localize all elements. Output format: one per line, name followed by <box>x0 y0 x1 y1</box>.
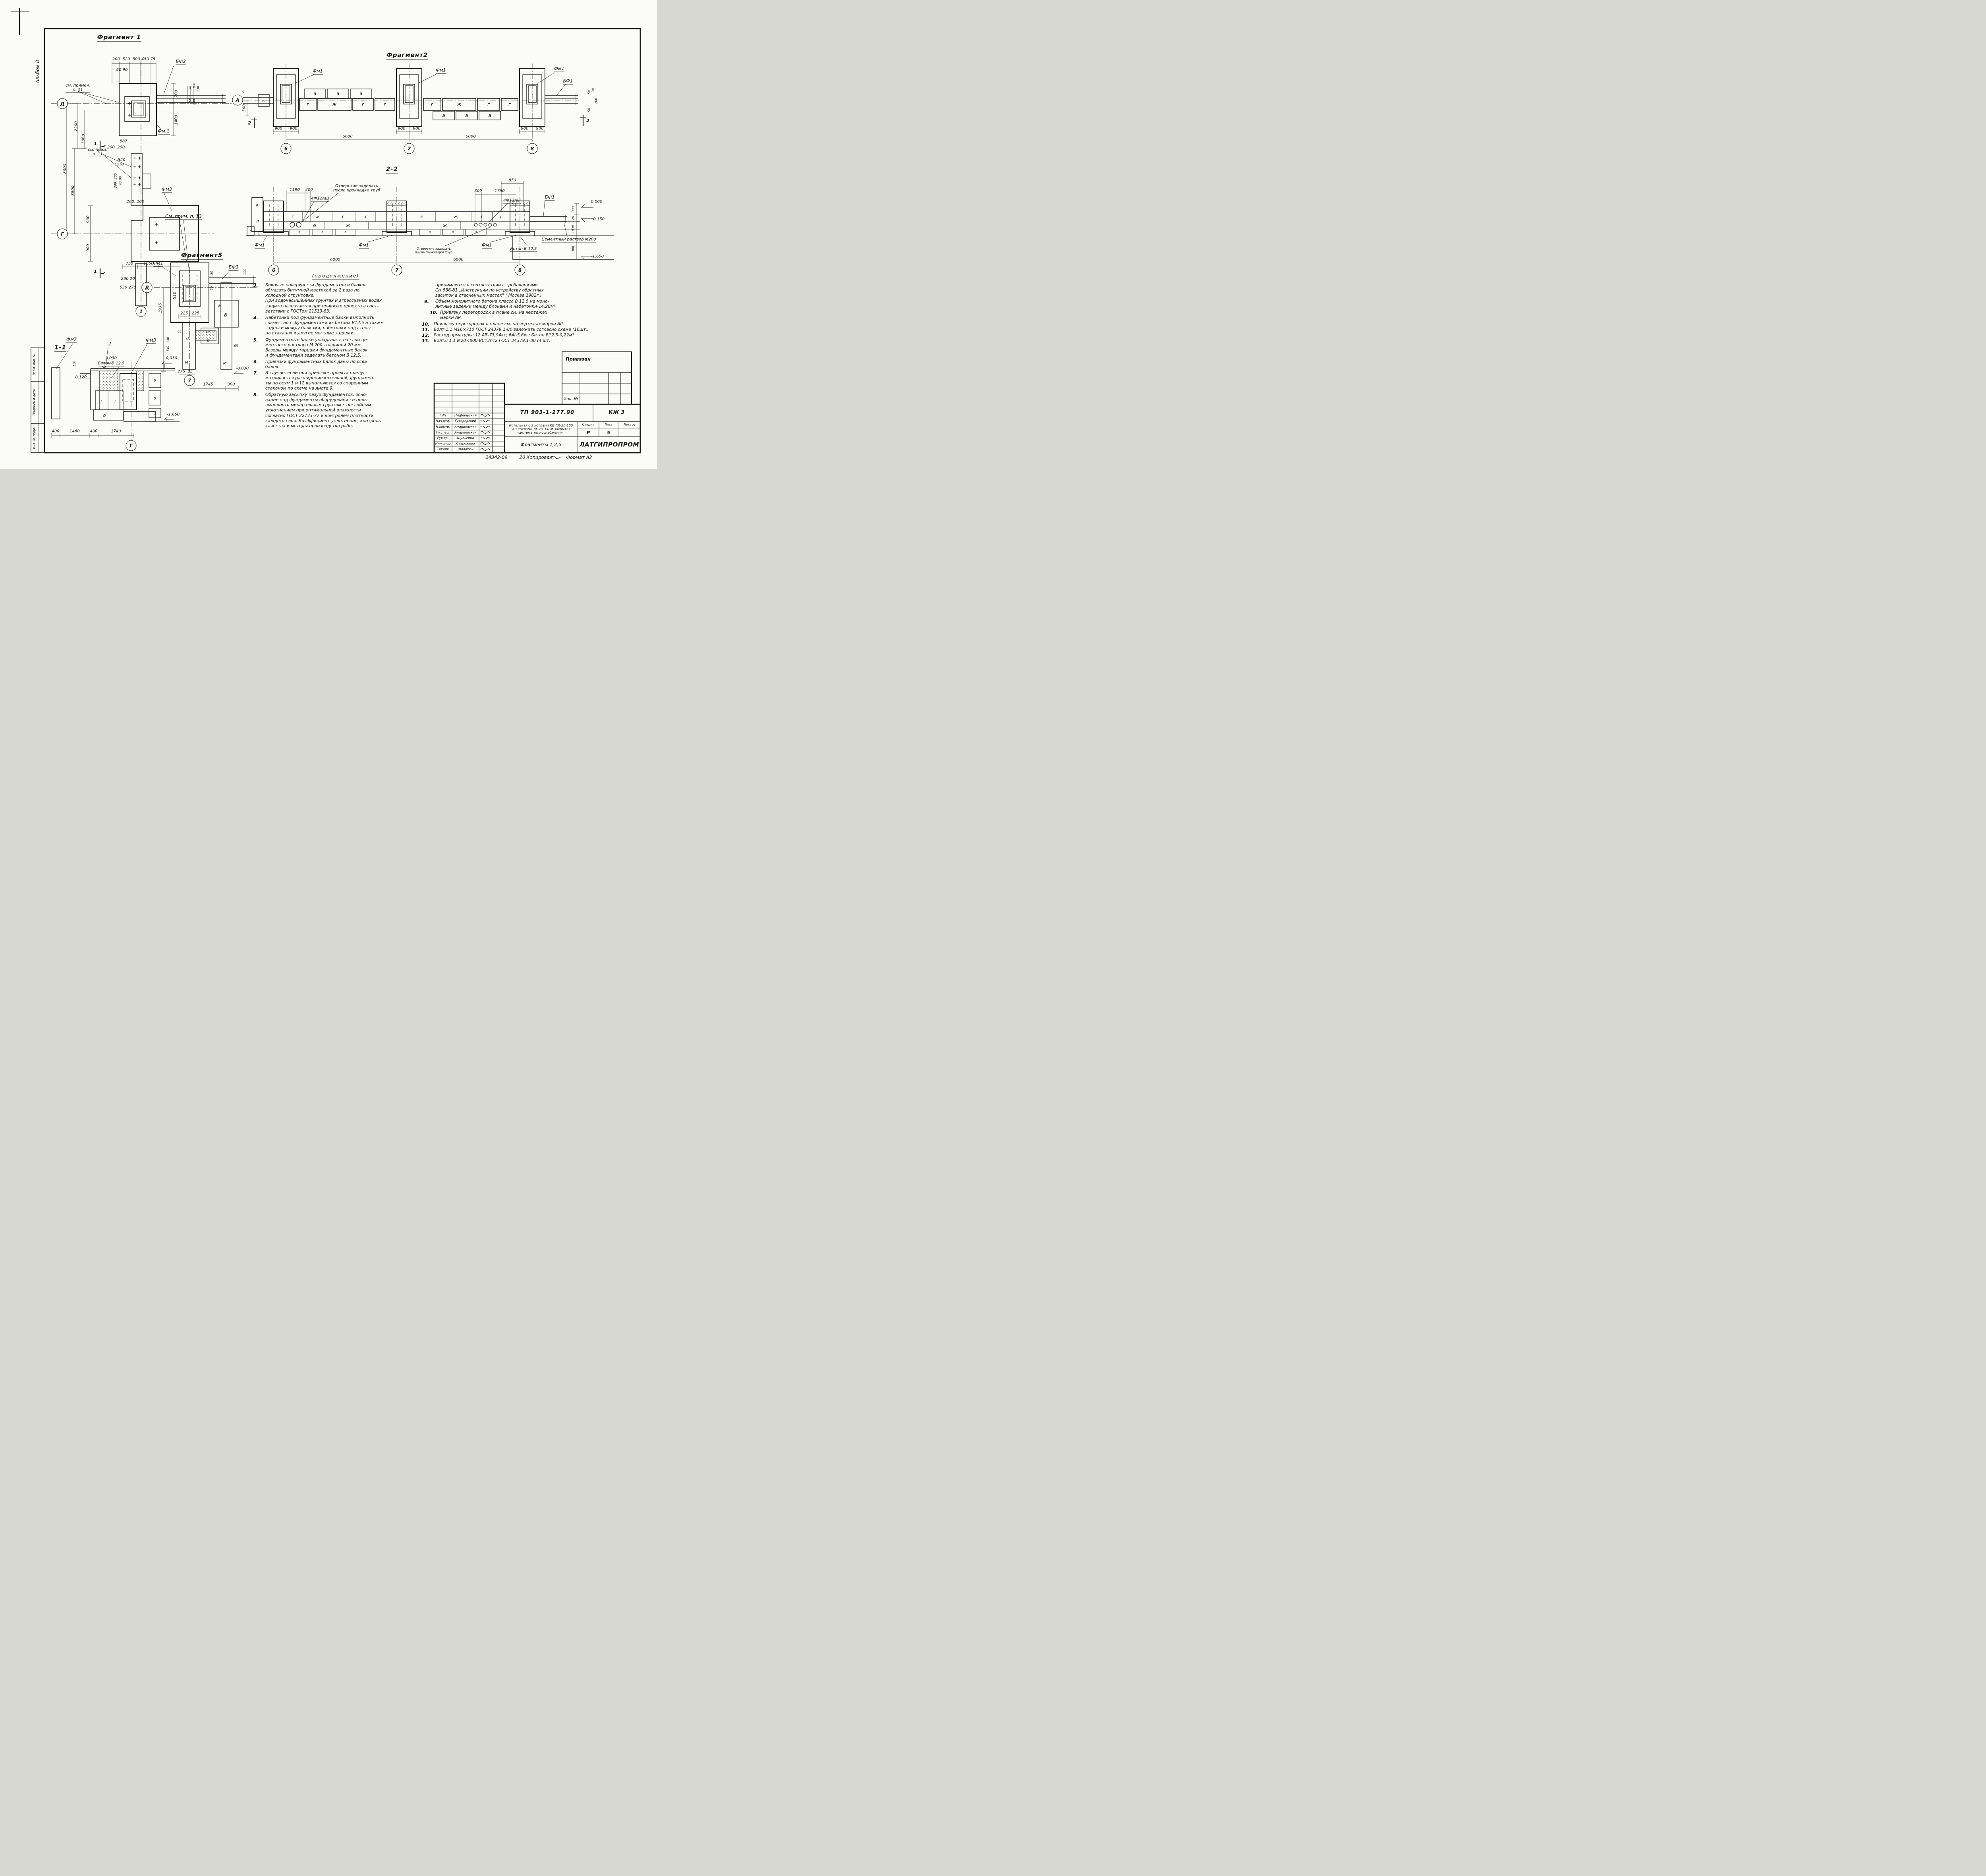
sec22-level-zero: 0.000 <box>591 199 603 204</box>
tb-code: КЖ 3 <box>609 410 624 416</box>
frag5-blk-a2: а <box>218 303 220 309</box>
frag2-block-a5: а <box>465 113 468 118</box>
sec22-blk-g1: г <box>292 214 294 220</box>
frag1-dim-587: 587 <box>120 139 127 143</box>
tb-name-2: Гутерерский <box>455 420 476 423</box>
frag1-dim-200200a: 200 200 <box>107 145 125 149</box>
notes-heading: (продолжение) <box>312 274 359 280</box>
sec22-bars2-label: 4Ф12АIII <box>503 198 520 203</box>
note7-text: В случае, если при привязке проекта пред… <box>265 371 424 392</box>
sec22-blk-g5: г <box>500 214 502 220</box>
frag5-dim-510: 510 <box>172 291 177 299</box>
sec11-blk-a2: а <box>153 411 156 416</box>
frag1-dim-50a: 50 <box>189 86 193 90</box>
note8-text: Обратную засыпку пазух фундаментов, осно… <box>265 392 424 429</box>
sec22-axis-6: 6 <box>269 265 279 276</box>
frag5-blk-v2: в <box>207 338 210 344</box>
sec11-beton-label: Бетон В 12,5 <box>98 361 125 366</box>
frag5-blk-m1: м <box>185 360 189 365</box>
frag1-dim-28020: 280 20 <box>121 276 135 281</box>
margin-stamp-vzam: Взам. инв. № <box>33 354 37 375</box>
sec11-dim-400a: 400 <box>52 429 59 433</box>
frag1-dim-100b: 100 <box>193 99 197 105</box>
sec22-blk-zh2: ж <box>346 223 350 228</box>
frag1-dim-2200: 2200 <box>74 121 78 131</box>
tb-sheet-header: Лист <box>605 423 612 427</box>
sec22-chain-20: 20 <box>572 216 576 220</box>
sec11-fm7-label: Фм7 <box>66 337 77 343</box>
frag5-dim-140a: 140 <box>167 337 170 343</box>
sec22-blk-zh1: ж <box>316 214 320 220</box>
frag2-dim-5: 5 <box>242 91 244 95</box>
frag1-dim-900a: 900 <box>86 215 90 223</box>
sec22-dim-850: 850 <box>508 178 516 182</box>
tb-name-7: Шолотюк <box>458 448 473 452</box>
sec11-dim-1460: 1460 <box>70 429 79 433</box>
sec11-blk-g2: г <box>114 399 117 404</box>
note8-num: 8. <box>253 392 258 398</box>
frag2-dim-30: 30 <box>592 88 595 92</box>
frag2-dim-50b: 50 <box>588 108 591 112</box>
frag1-dim-700: 700 <box>174 90 178 97</box>
sec11-blk-a1: а <box>103 413 106 418</box>
note4-text: Набетонки под фундаментные балки выполни… <box>265 315 424 336</box>
frag1-dim-750: 750 <box>126 261 133 266</box>
sec22-cement-label: Цементный раствор М200 <box>541 237 596 242</box>
frag1-fm3-label: Фм3 <box>162 187 172 193</box>
sec22-level-m165: -1,650 <box>591 254 604 259</box>
frag1-dim-100a: 100 <box>193 83 197 89</box>
note5-num: 5. <box>253 338 258 343</box>
frag5-prim13-label: См. прим. п. 13 <box>165 214 202 220</box>
note6-text: Привязки фундаментных балок даны по осям… <box>265 359 424 370</box>
frag1-strip-dim-200b: 200 <box>114 182 118 188</box>
frag2-block-zh2: ж <box>457 102 461 107</box>
note10-num: 10. <box>422 322 430 327</box>
drawing-sheet: Альбом 8 Взам. инв. № Подпись и дата Инв… <box>0 0 657 469</box>
sec22-fm1-label-3: Фм1 <box>482 243 492 249</box>
tb-name-1: Нидбальский <box>454 414 477 418</box>
sec22-chain-1030: 1030 <box>572 225 576 233</box>
tb-stage-value: Р <box>587 430 590 436</box>
axis-bubble-g: Г <box>57 229 68 239</box>
frag5-blk-b: б <box>224 313 227 318</box>
sec11-dim-1740: 1740 <box>111 429 121 433</box>
sec22-blk-a2: а <box>322 231 324 234</box>
frag5-level-m003: -0,030 <box>236 366 249 371</box>
frag2-block-a3: а <box>359 91 362 97</box>
frag2-block-g4: г <box>431 102 433 107</box>
frag2-block-a2: а <box>336 91 339 97</box>
sec11-dim-400b: 400 <box>90 429 97 433</box>
axis-bubble-8: 8 <box>527 143 538 154</box>
sec22-dim-1190: 1190 <box>290 187 299 192</box>
sec22-hole-note-2: Отверстие заделать после прокладки труб <box>415 247 453 255</box>
note9-text: Объем монолитного бетона класса В 12,5 н… <box>435 299 618 309</box>
tb-role-4: Гл.спец. <box>436 431 450 435</box>
sec22-bf1-label: БФ1 <box>545 195 554 201</box>
frag1-note11b: см. прим. п. 11 <box>88 148 108 157</box>
margin-stamp-podpis: Подпись и дата <box>33 389 37 415</box>
frag5-dim-140b: 140 <box>167 345 170 351</box>
sec22-chain-300a: 300 <box>572 206 576 212</box>
note10a-num: 10. <box>430 310 438 315</box>
tb-name-6: Старожева <box>456 442 475 446</box>
sec22-blk-a1: а <box>299 231 301 234</box>
frag1-dim-3800: 3800 <box>71 185 75 195</box>
frag1-dim-9090a: 90 90 <box>116 68 128 72</box>
sec22-dim-1750: 1750 <box>495 189 504 193</box>
frag5-dim-65b: 65 <box>234 345 238 348</box>
axis-bubble-6: 6 <box>281 143 292 154</box>
sec11-blk-v1: в <box>154 378 156 383</box>
frag5-dim-200: 200 <box>244 268 247 274</box>
sec22-fm1-label-1: Фм1 <box>255 243 265 249</box>
tb-stage-header: Стадия <box>582 423 595 427</box>
frag1-bf2-label: БФ2 <box>176 59 185 65</box>
sec22-dim-6000-1: 6000 <box>330 257 340 262</box>
sec22-bars1-label: 4Ф12АШ <box>311 196 329 201</box>
tb-role-6: Инженер <box>435 442 451 446</box>
frag1-fm1-label: Фм 1 <box>158 129 170 135</box>
frag2-block-k: к <box>263 98 265 104</box>
frag5-dim-50b: 50 <box>211 286 214 290</box>
sec11-blk-v2: в <box>154 396 156 401</box>
frag2-dim-6000-2: 6000 <box>466 134 475 139</box>
note7-num: 7. <box>253 371 258 376</box>
frag1-strip-dim-200a: 200 <box>114 173 118 179</box>
frag2-block-g5: г <box>487 102 490 107</box>
note8-continuation: принимаются в соответствии с требованиям… <box>435 283 618 298</box>
tb-doc-number: ТП 903-1-277.90 <box>520 410 574 416</box>
note13-num: 13. <box>422 338 430 344</box>
sec11-level-m012: -0,120 <box>74 375 87 379</box>
sec22-blk-e2: е <box>420 214 423 220</box>
sec22-dim-300a: 300 <box>305 187 313 192</box>
frag2-fm1-label-1: Фм1 <box>313 69 323 75</box>
sec22-axis-8: 8 <box>515 265 525 276</box>
frag2-block-zh1: ж <box>332 102 336 107</box>
frag1-dim-1400: 1400 <box>174 115 178 125</box>
frag5-dim-50a: 50 <box>211 271 214 275</box>
footer-copies: 20 <box>520 455 525 460</box>
sec11-dim-120: 120 <box>73 361 77 367</box>
note12-num: 12. <box>422 333 430 338</box>
frag2-dim-900900-3: 900 900 <box>521 126 543 131</box>
frag1-dim-9090b: 90 90 <box>115 164 124 167</box>
frag1-dim-1050: 1050 <box>143 261 153 266</box>
sec22-dim-300b: 300 <box>474 189 482 193</box>
frag2-dim-50a: 50 <box>588 90 591 94</box>
footer-doc-number: 24342-09 <box>485 455 507 460</box>
fragment2-linework <box>243 64 586 148</box>
sec11-level-m165: -1,650 <box>167 412 180 417</box>
sec22-dim-6000-2: 6000 <box>453 257 463 262</box>
sec22-blk-g2: г <box>342 214 344 220</box>
frag5-axis-d: Д <box>142 282 153 293</box>
sec11-level-m003b: -0,030 <box>164 356 177 360</box>
sec22-blk-g4: г <box>481 214 483 220</box>
tb-role-2: Нач.отд. <box>436 420 450 423</box>
note3-num: 3. <box>253 283 258 288</box>
note9-num: 9. <box>424 299 429 304</box>
tb-description: Котельная с 3 котлами КВ-ГМ-35-150 и 3 к… <box>509 424 573 435</box>
section22-title: 2-2 <box>386 166 398 174</box>
tb-role-3: Н.контр. <box>436 426 450 429</box>
fragment1-title: Фрагмент 1 <box>97 34 141 42</box>
frag1-dim-520: 520 <box>118 158 125 162</box>
sec22-blk-a4: а <box>429 231 431 234</box>
fragment5-title: Фрагмент5 <box>181 252 223 260</box>
frag5-blk-m2: м <box>223 361 227 366</box>
footer-format-label: Формат А2 <box>566 455 592 460</box>
frag2-section2-marker-right: 2 <box>586 118 589 124</box>
fragment1-linework <box>51 60 232 308</box>
frag5-blk-a1: а <box>206 330 209 335</box>
sec22-blk-e1: е <box>313 223 316 228</box>
frag1-dim-530270: 530 270 <box>120 285 136 290</box>
note10a-text: Привязку перегородок в плане см. на черт… <box>440 310 619 320</box>
fragment2-title: Фрагмент2 <box>386 52 428 60</box>
sec22-blk-g3: г <box>365 214 367 220</box>
footer-copied-label: Копировал <box>526 455 553 460</box>
frag5-axis-7: 7 <box>184 375 195 386</box>
sec11-axis-g: Г <box>126 440 137 451</box>
frag2-block-a6: а <box>488 113 491 118</box>
frag5-dim-27525: 275 25 <box>178 369 193 374</box>
frag5-dim-300: 300 <box>227 382 235 386</box>
frag5-dim-1745: 1745 <box>203 382 213 386</box>
privyazan-label: Привязан <box>566 357 591 362</box>
sec22-blk-zh4: ж <box>443 223 447 228</box>
sec22-beton-label: Бетон В 12,5 <box>510 247 537 252</box>
tb-sheet-value: 5 <box>607 430 610 436</box>
axis-bubble-7: 7 <box>404 143 415 154</box>
sec22-blk-a6: а <box>475 231 477 234</box>
section11-title: 1-1 <box>54 344 66 352</box>
frag2-block-a1: а <box>313 91 316 97</box>
frag2-block-a4: а <box>442 113 445 118</box>
tb-role-1: ГИП <box>440 414 446 418</box>
axis-bubble-a: А <box>232 95 243 106</box>
sec22-blk-a5: а <box>452 231 454 234</box>
frag5-dim-1935: 1935 <box>158 303 162 313</box>
sec22-block-k: к <box>256 203 259 208</box>
note3-text: Боковые поверхности фундаментов и блоков… <box>265 283 424 314</box>
album-label: Альбом 8 <box>35 60 40 83</box>
frag2-dim-900900-2: 900 900 <box>398 126 420 131</box>
frag5-dim-65a: 65 <box>178 330 182 334</box>
sec22-block-a0: а <box>250 230 252 234</box>
frag1-strip-dim-90b: 90 <box>119 181 123 185</box>
frag2-block-g6: г <box>508 102 511 107</box>
frag1-strip-dim-90a: 90 <box>119 176 123 180</box>
tb-role-5: Рук.гр. <box>437 437 449 440</box>
margin-stamp-inv: Инв. № подл. <box>33 427 37 449</box>
frag2-dim-900900-1: 900 900 <box>274 126 297 131</box>
frag1-dim-8000: 8000 <box>63 164 67 174</box>
note13-text: Болты 1.1 М20×800 ВСт3пс2 ГОСТ 24379.1-8… <box>434 338 619 344</box>
frag5-blk-v1: в <box>186 336 189 341</box>
note5-text: Фундаментные балки укладывать на слой це… <box>265 338 424 359</box>
tb-name-3: Андриевская <box>454 426 476 429</box>
frag2-block-g3: г <box>384 102 386 107</box>
frag2-dim-6000-1: 6000 <box>342 134 352 139</box>
frag1-dim-200200b: 200. 200 <box>127 199 145 204</box>
note4-num: 4. <box>253 315 258 320</box>
axis-bubble-1: 1 <box>136 306 147 317</box>
sec22-fm1-label-2: Фм1 <box>359 243 369 249</box>
tb-role-7: Техник <box>437 448 449 452</box>
note6-num: 6. <box>253 359 258 365</box>
tb-organization: ЛАТГИПРОПРОМ <box>580 442 639 448</box>
privyazan-inv-label: Инв. № <box>564 397 578 401</box>
sec22-blk-a3: а <box>345 231 347 234</box>
frag1-dim-1860: 1860 <box>81 134 85 144</box>
frag2-dim-200: 200 <box>595 98 599 104</box>
frag1-section1-marker-b: 1 <box>94 269 97 274</box>
tb-name-5: Шульгина <box>457 437 474 440</box>
frag2-bf1-label: БФ1 <box>563 79 573 85</box>
frag5-fm1-label: Фм1 <box>153 261 163 267</box>
note12-text: Расход арматуры: 12 АⅢ-73,94кг; 6АⅠ-5,6к… <box>434 333 619 338</box>
sec11-blk-g1: г <box>100 399 103 404</box>
frag1-dim-top: 200 520 500 450 75 <box>112 57 155 61</box>
tb-sheets-header: Листов <box>624 423 636 427</box>
sec22-axis-7: 7 <box>392 265 402 276</box>
sec11-g2-label: 2 <box>108 342 111 347</box>
axis-bubble-d: Д <box>57 98 68 109</box>
note11-text: Болт 1.1 М16×710 ГОСТ 24379.1-80 заложит… <box>434 327 619 332</box>
frag2-block-g2: г <box>362 102 364 107</box>
sec22-block-l: л <box>256 219 259 224</box>
frag5-dim-225225: 225 225 <box>180 311 199 315</box>
tb-name-4: Андриевская <box>454 431 476 435</box>
note10-text: Привязку перегородок в плане см. на черт… <box>434 322 619 327</box>
sec22-blk-zh3: ж <box>454 214 458 220</box>
frag1-dim-130: 130 <box>197 86 201 92</box>
frag1-dim-900b: 900 <box>86 244 90 251</box>
frag1-note11a: см. примеч. п. 11 <box>66 83 90 93</box>
sec22-hole-note-1: Отверстие заделать после прокладки труб <box>333 184 380 193</box>
frag2-fm1-label-2: Фм1 <box>436 68 446 74</box>
frag2-fm1-label-3: Фм1 <box>554 66 564 72</box>
sec11-fm3-label: Фм3 <box>146 338 156 344</box>
frag2-section2-marker-left: 2 <box>248 121 251 126</box>
tb-subtitle: Фрагменты 1,2,5 <box>521 442 561 448</box>
sec11-level-m003a: -0,030 <box>104 356 117 360</box>
frag2-dim-500: 500 <box>242 104 246 112</box>
frag1-dim-50b: 50 <box>189 98 193 102</box>
sec22-level-m015: -0,150 <box>592 217 605 221</box>
frag2-block-g1: г <box>307 102 309 107</box>
sec22-chain-300b: 300 <box>572 246 576 252</box>
frag1-section1-marker: 1 <box>94 141 97 147</box>
frag5-bf3-label: БФ3 <box>228 265 238 271</box>
note11-num: 11. <box>422 327 430 332</box>
